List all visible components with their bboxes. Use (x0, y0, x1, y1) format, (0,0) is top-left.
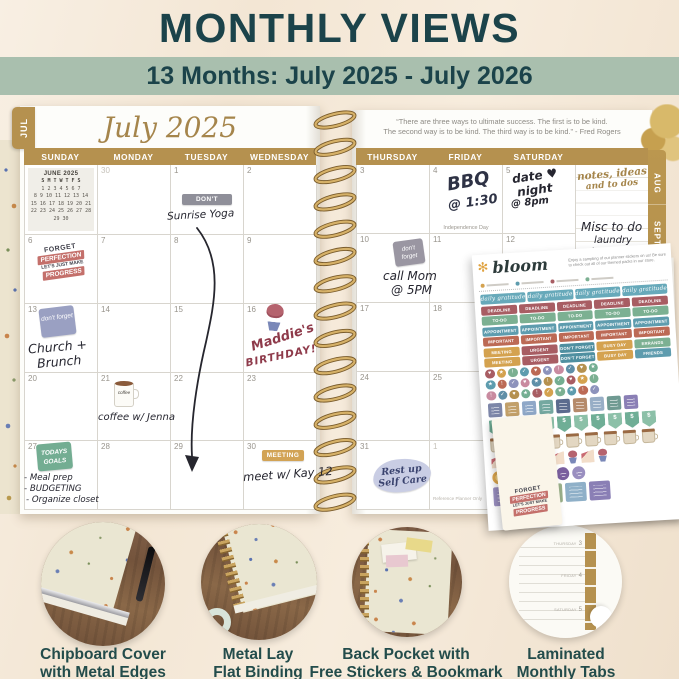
coffee-cup-sticker (566, 434, 580, 448)
mini-week-row: 8 9 10 11 12 13 14 (28, 193, 94, 201)
icon-dot-sticker: ♥ (577, 363, 587, 373)
sticker-label: URGENT (522, 354, 558, 365)
date-number: 31 (360, 442, 369, 451)
icon-dot-sticker: ★ (577, 374, 587, 384)
dollar-pennant-sticker: $ (591, 414, 606, 431)
dollar-pennant-sticker: $ (625, 411, 640, 428)
sticker-label-grid: daily gratitudedaily gratitudedaily grat… (479, 283, 672, 367)
quote-square-sticker (573, 398, 588, 413)
date-number: 25 (433, 373, 442, 382)
quote-square-sticker (624, 394, 639, 409)
weekday-label: FRIDAY (429, 148, 502, 165)
inspirational-quote: “There are three ways to ultimate succes… (356, 117, 648, 137)
coil-binding (360, 533, 369, 633)
mini-week-row: 15 16 17 18 19 20 21 (28, 201, 94, 209)
date-number: 30 (247, 442, 256, 451)
handwriting-call-mom: call Mom (383, 269, 437, 283)
tab-page-row: FRIDAY4 (561, 573, 582, 579)
sticker-label: TO-DO (557, 310, 593, 321)
icon-dot-sticker: ♥ (531, 366, 541, 376)
sticker-label: APPOINTMENT (520, 323, 556, 334)
feature-photo-metal-binding (201, 524, 317, 640)
feature-photo-chipboard-cover (41, 522, 165, 646)
date-number: 14 (101, 305, 110, 314)
icon-dot-sticker: ★ (496, 368, 506, 378)
cake-slice-sticker (581, 449, 595, 463)
calendar-cell: 7 (98, 235, 171, 304)
date-number: 1 (174, 166, 178, 175)
forget-perfection-bookmark-art: FORGET PERFECTION LET'S JUST MAKE PROGRE… (509, 484, 552, 518)
tab-page-text: 3 (579, 541, 582, 547)
caption-line: Monthly Tabs (478, 664, 654, 679)
sheet-tagline: Enjoy a sampling of our planner stickers… (568, 248, 667, 267)
weekday-label: SUNDAY (24, 148, 97, 165)
sticker-label: BUSY DAY (597, 339, 633, 350)
handwriting-budgeting: - BUDGETING (24, 484, 82, 494)
feature-photo-back-pocket (352, 527, 462, 637)
sticker-label: BUSY DAY (597, 350, 633, 361)
date-number: 28 (101, 442, 110, 451)
tab-page-text: SATURDAY (554, 608, 577, 612)
dollar-pennant-sticker: $ (557, 416, 572, 433)
coffee-cup-sticker (642, 429, 656, 443)
sticker-label: APPOINTMENT (595, 318, 631, 329)
sticker-label: APPOINTMENT (482, 325, 518, 336)
icon-dot-sticker: ★ (566, 386, 576, 396)
sticker-label: TO-DO (595, 308, 631, 319)
bookmark: FORGET PERFECTION LET'S JUST MAKE PROGRE… (491, 413, 562, 531)
sticker-label: URGENT (521, 344, 557, 355)
date-number: 16 (247, 305, 256, 314)
calendar-cell: 29 (171, 441, 244, 510)
coffee-cup-sticker (604, 432, 618, 446)
weekday-label: WEDNESDAY (243, 148, 316, 165)
quote-square-sticker (488, 403, 503, 418)
page-curl (590, 606, 612, 628)
sticker-label: TO-DO (482, 315, 518, 326)
sticker-label: daily gratitude (622, 283, 668, 296)
date-number: 1 (433, 442, 437, 451)
quote-line: The second way is to be kind. The third … (356, 127, 648, 137)
mug-label: coffee (114, 390, 134, 395)
spiral-binding (312, 106, 360, 516)
caption-line: Laminated (478, 646, 654, 664)
icon-dot-sticker: ♥ (509, 389, 519, 399)
sticker-label: DEADLINE (481, 304, 517, 315)
side-tab-label: SEPT (653, 221, 662, 246)
tab-page-text: THURSDAY (554, 542, 577, 546)
calendar-cell: 2 (244, 165, 317, 235)
date-number: 11 (433, 235, 441, 244)
date-number: 9 (247, 236, 251, 245)
sticker-label: IMPORTANT (596, 329, 632, 340)
social-handle-placeholder (585, 276, 613, 282)
icon-dot-sticker: ✓ (508, 378, 518, 388)
calendar-cell: 8 (171, 235, 244, 304)
mug-coffee (115, 381, 133, 386)
sticker-label: TO-DO (519, 312, 555, 323)
caption-line: Back Pocket with (306, 646, 506, 664)
mini-month-calendar: JUNE 2025S M T W T F S1 2 3 4 5 6 78 9 1… (28, 168, 94, 231)
sticker-label: IMPORTANT (558, 331, 594, 342)
sticker-label: APPOINTMENT (633, 316, 669, 327)
quote-square-sticker (556, 399, 571, 414)
meeting-sticker: MEETING (262, 450, 304, 461)
sticker-label: IMPORTANT (634, 326, 670, 337)
sticker-label: DEADLINE (519, 302, 555, 313)
brand-name: bloom (492, 256, 549, 277)
handwriting-5pm: @ 5PM (391, 283, 432, 297)
icon-dot-sticker: ✓ (554, 375, 564, 385)
social-handle-placeholder (515, 280, 543, 286)
tab-page-text: 5 (579, 607, 582, 613)
handwriting-coffee-w-jenna: coffee w/ Jenna (98, 412, 175, 423)
date-number: 4 (433, 166, 437, 175)
page-title: MONTHLY VIEWS (0, 5, 679, 52)
reference-footnote: Reference Planner Only (433, 496, 482, 501)
date-number: 3 (360, 166, 364, 175)
date-number: 8 (174, 236, 178, 245)
sticker-label: DON'T FORGET (559, 341, 595, 352)
handwriting-meal-prep: - Meal prep (24, 473, 73, 483)
pen (135, 546, 155, 602)
weekday-label: MONDAY (97, 148, 170, 165)
date-number: 24 (360, 373, 369, 382)
calendar-cell: 17 (357, 303, 430, 372)
weekday-header-right: THURSDAYFRIDAYSATURDAY (356, 148, 648, 165)
side-tab-label: AUG (653, 173, 662, 194)
todays-goals-sticker: TODAYS GOALS (36, 442, 73, 472)
icon-dot-sticker: ★ (588, 362, 598, 372)
icon-dot-sticker: ★ (521, 389, 531, 399)
tab-page-text: 4 (579, 573, 582, 579)
calendar-cell: 15 (171, 304, 244, 373)
icon-dot-sticker: ! (497, 379, 507, 389)
holiday-label: Independence Day (430, 225, 502, 231)
date-number: 12 (506, 235, 515, 244)
date-number: 30 (101, 166, 110, 175)
date-number: 20 (28, 374, 37, 383)
feature-photo-monthly-tabs: THURSDAY3FRIDAY4SATURDAY5 (509, 525, 622, 638)
weekday-header-left: SUNDAYMONDAYTUESDAYWEDNESDAY (24, 148, 316, 165)
icon-dot-sticker: ✓ (565, 364, 575, 374)
coffee-cup-sticker (585, 433, 599, 447)
icon-dot-sticker: ♥ (520, 378, 530, 388)
date-number: 23 (247, 374, 256, 383)
calendar-cell: 3 (357, 165, 430, 234)
weekday-label: TUESDAY (170, 148, 243, 165)
calendar-cell: 24 (357, 372, 430, 441)
subtitle-banner: 13 Months: July 2025 - July 2026 (0, 57, 679, 95)
icon-dot-sticker: ✓ (498, 390, 508, 400)
coffee-mug-sticker: coffee (114, 381, 136, 405)
icon-dot-sticker: ✓ (589, 384, 599, 394)
date-number: 22 (174, 374, 183, 383)
icon-dot-sticker: ! (486, 391, 496, 401)
mini-week-row: 1 2 3 4 5 6 7 (28, 186, 94, 194)
quote-line: “There are three ways to ultimate succes… (356, 117, 648, 127)
dont-forget-sticker: DON'T FORGET (182, 194, 232, 205)
weekday-label: SATURDAY (502, 148, 575, 165)
date-number: 21 (101, 374, 110, 383)
date-number: 6 (28, 236, 32, 245)
product-marketing-image: MONTHLY VIEWS 13 Months: July 2025 - Jul… (0, 0, 679, 679)
icon-dot-sticker: ♥ (566, 375, 576, 385)
quote-square-sticker (522, 401, 537, 416)
calendar-cell: 9 (244, 235, 317, 304)
sticker-label: MEETING (483, 346, 519, 357)
sticker-label: TO-DO (632, 305, 668, 316)
sticker-label: DON'T FORGET (560, 352, 596, 363)
date-number: 29 (174, 442, 183, 451)
caption-line: Free Stickers & Bookmark (306, 664, 506, 679)
tab-page-row: THURSDAY3 (554, 541, 582, 547)
quote-square-sticker (590, 397, 605, 412)
month-title: July 2025 (20, 111, 320, 144)
cupcake-sticker (567, 450, 579, 464)
planner-cover-edge (0, 140, 22, 514)
tab-page-row: SATURDAY5 (554, 607, 582, 613)
date-number: 5 (506, 166, 510, 175)
calendar-cell: 28 (98, 441, 171, 510)
icon-dot-sticker: ! (543, 376, 553, 386)
mini-week-row: 22 23 24 25 26 27 28 (28, 208, 94, 216)
feature-caption-tabs: Laminated Monthly Tabs (478, 646, 654, 679)
sticker-label: daily gratitude (575, 286, 621, 299)
dont-forget-sticker: don't forget (38, 305, 76, 338)
quote-square-sticker (607, 396, 622, 411)
date-number: 17 (360, 304, 369, 313)
dollar-pennant-sticker: $ (642, 410, 657, 427)
circle-quote-sticker (572, 466, 586, 480)
calendar-cell: 30 (98, 165, 171, 235)
quote-sticker-square (565, 482, 587, 502)
icon-dot-sticker: ! (508, 367, 518, 377)
mini-day-row: S M T W T F S (28, 178, 94, 186)
icon-dot-sticker: ★ (531, 377, 541, 387)
calendar-cell: 20 (25, 373, 98, 442)
sticker-label: ERRANDS (634, 337, 670, 348)
quote-square-sticker (539, 400, 554, 415)
icon-dot-sticker: ✓ (519, 367, 529, 377)
cupcake-sticker (597, 448, 609, 462)
bloom-flower-icon: ✻ (477, 259, 489, 276)
side-tab-aug: AUG (648, 162, 666, 205)
weekday-label: THURSDAY (356, 148, 429, 165)
dont-forget-sticker: don't forget (392, 238, 425, 267)
sticker-label: DEADLINE (594, 297, 630, 308)
washi-tape-roll (203, 608, 231, 636)
quote-sticker-square (589, 480, 611, 500)
date-number: 10 (360, 235, 369, 244)
date-number: 15 (174, 305, 183, 314)
icon-dot-sticker: ★ (485, 380, 495, 390)
sticker-label: APPOINTMENT (558, 321, 594, 332)
dollar-pennant-sticker: $ (574, 415, 589, 432)
feature-caption-pocket: Back Pocket with Free Stickers & Bookmar… (306, 646, 506, 679)
icon-dot-sticker: ! (578, 385, 588, 395)
handwriting-laundry: laundry (594, 235, 632, 246)
date-number: 18 (433, 304, 442, 313)
sticker-label: FRIENDS (635, 347, 671, 358)
sticker-label: DEADLINE (632, 295, 668, 306)
coffee-cup-sticker (623, 431, 637, 445)
icon-dot-sticker: ♥ (555, 386, 565, 396)
social-handle-placeholder (481, 282, 509, 288)
icon-dot-sticker: ★ (542, 365, 552, 375)
calendar-cell: 14 (98, 304, 171, 373)
date-number: 13 (28, 305, 37, 314)
sticker-label: MEETING (484, 357, 520, 368)
sticker-text: GOALS (37, 455, 73, 467)
pocket-paper (386, 555, 408, 568)
mini-month-title: JUNE 2025 (28, 171, 94, 177)
social-handle-placeholder (550, 278, 578, 284)
date-number: 2 (247, 166, 251, 175)
sticker-label: IMPORTANT (483, 336, 519, 347)
tab-page-text: FRIDAY (561, 574, 576, 578)
icon-dot-sticker: ! (589, 373, 599, 383)
calendar-cell: JUNE 2025S M T W T F S1 2 3 4 5 6 78 9 1… (25, 165, 98, 235)
cupcake-frosting (266, 303, 284, 319)
calendar-cell: 22 (171, 373, 244, 442)
weekday-label (575, 148, 648, 165)
icon-dot-sticker: ! (554, 364, 564, 374)
handwriting-misc-to-do: Misc to do (581, 220, 642, 234)
sticker-label: daily gratitude (480, 292, 526, 305)
dollar-pennant-sticker: $ (608, 412, 623, 429)
sticker-label: IMPORTANT (521, 333, 557, 344)
quote-square-sticker (505, 402, 520, 417)
mini-week-row: 29 30 (28, 216, 94, 224)
handwriting-organize-closet: - Organize closet (26, 495, 99, 505)
sticker-label: daily gratitude (527, 289, 573, 302)
icon-dot-sticker: ! (532, 388, 542, 398)
mug-body (114, 383, 134, 407)
icon-dot-sticker: ✓ (543, 387, 553, 397)
sticker-label: DEADLINE (556, 300, 592, 311)
date-number: 7 (101, 236, 105, 245)
calendar-cell: 23 (244, 373, 317, 442)
icon-dot-sticker: ♥ (485, 369, 495, 379)
